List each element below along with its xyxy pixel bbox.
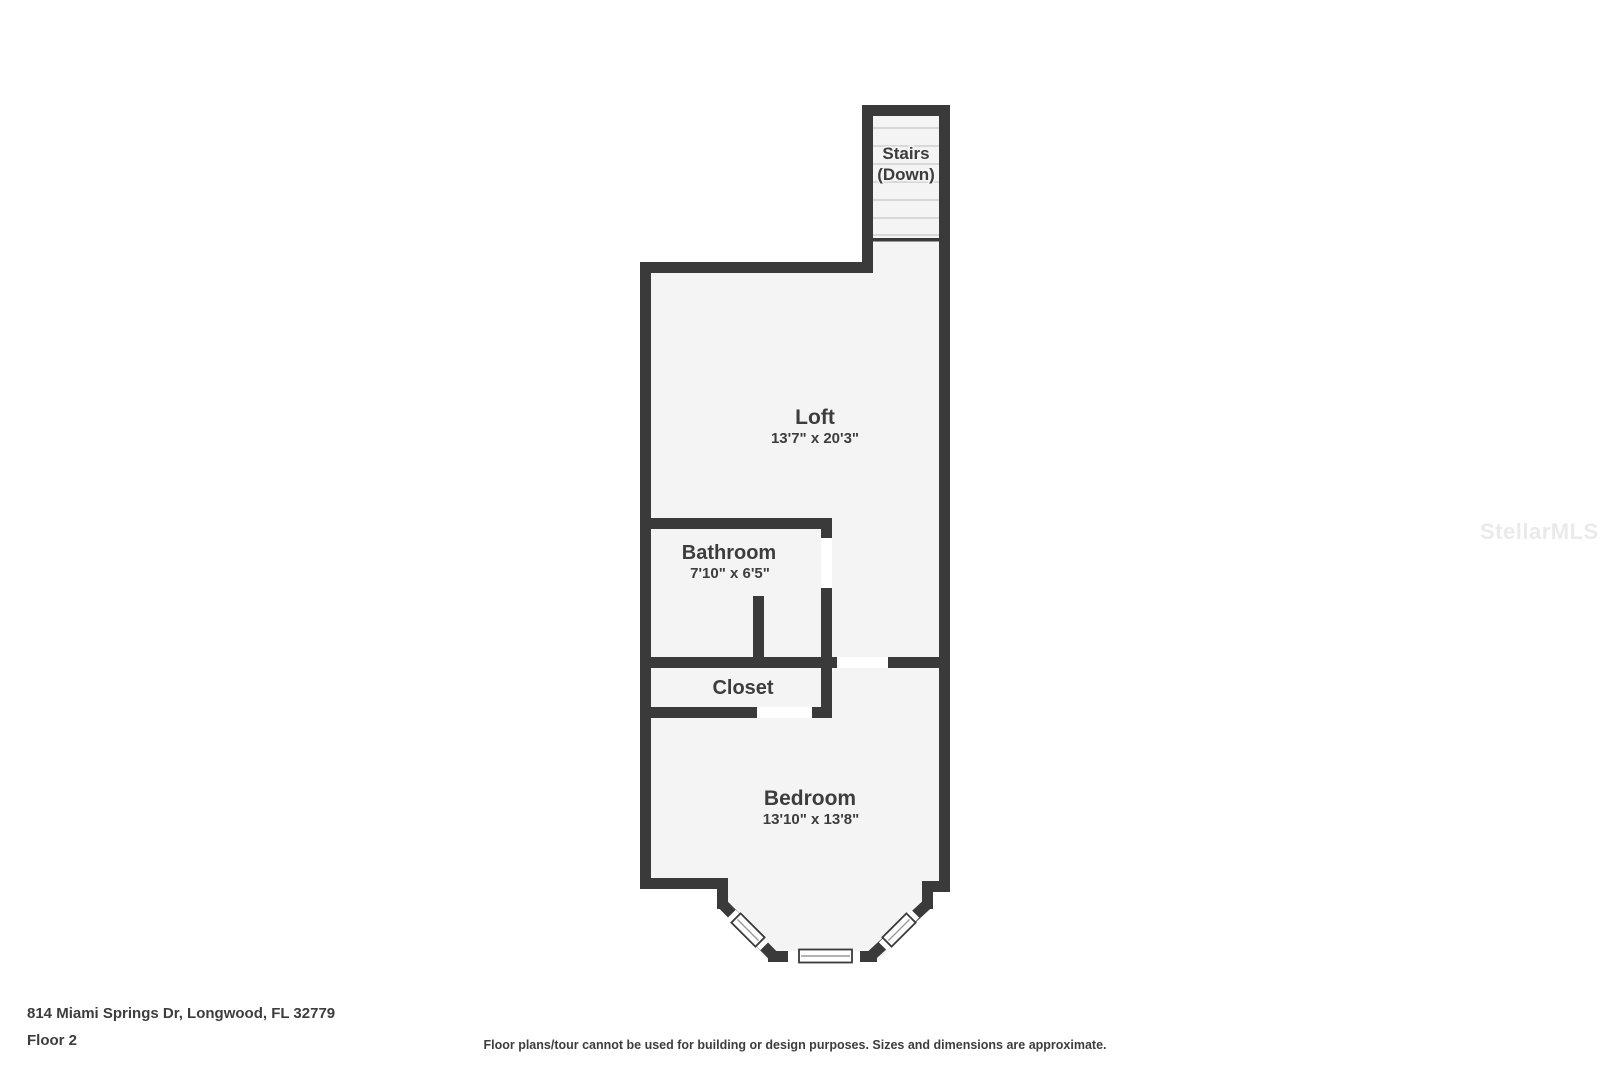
bedroom-door-opening <box>837 657 888 668</box>
floor-plan-canvas: Stairs (Down) Loft 13'7" x 20'3" Bathroo… <box>0 0 1600 1066</box>
wall-stairs-top <box>862 105 950 116</box>
stairs-sublabel: (Down) <box>877 165 935 184</box>
bedroom-label: Bedroom <box>764 787 856 810</box>
loft-dimensions: 13'7" x 20'3" <box>771 430 859 447</box>
floor-number-text: Floor 2 <box>27 1032 77 1049</box>
footer: 814 Miami Springs Dr, Longwood, FL 32779… <box>27 1005 1107 1052</box>
closet-label: Closet <box>712 677 773 699</box>
disclaimer-text: Floor plans/tour cannot be used for buil… <box>483 1038 1106 1052</box>
wall-bathroom-top <box>640 518 832 529</box>
stellar-mls-watermark: StellarMLS <box>1480 519 1599 544</box>
bathroom-dimensions: 7'10" x 6'5" <box>690 565 770 582</box>
wall-bathroom-stub <box>753 596 764 657</box>
wall-closet-bottom-right <box>812 707 832 718</box>
floor-plan-page: Stairs (Down) Loft 13'7" x 20'3" Bathroo… <box>0 0 1600 1066</box>
wall-bathroom-right-upper <box>821 518 832 538</box>
wall-stairs-left <box>862 105 873 273</box>
bathroom-label: Bathroom <box>682 542 776 564</box>
wall-closet-bottom-left <box>651 707 757 718</box>
wall-divider-left <box>640 657 837 668</box>
bedroom-dimensions: 13'10" x 13'8" <box>763 811 859 828</box>
wall-bathroom-right-lower <box>821 588 832 668</box>
address-text: 814 Miami Springs Dr, Longwood, FL 32779 <box>27 1005 335 1022</box>
bay-window-bottom <box>788 950 860 963</box>
closet-door-opening <box>757 707 812 718</box>
wall-right-exterior <box>939 105 950 892</box>
room-areas <box>640 105 950 962</box>
wall-bedroom-bottom-left <box>640 878 728 889</box>
stairs-label: Stairs <box>882 144 929 163</box>
wall-divider-right <box>888 657 950 668</box>
wall-loft-top <box>640 262 873 273</box>
loft-label: Loft <box>795 406 835 429</box>
wall-left-exterior <box>640 262 651 889</box>
stairs-bottom-edge <box>873 238 939 242</box>
bathroom-door-opening <box>821 538 832 588</box>
